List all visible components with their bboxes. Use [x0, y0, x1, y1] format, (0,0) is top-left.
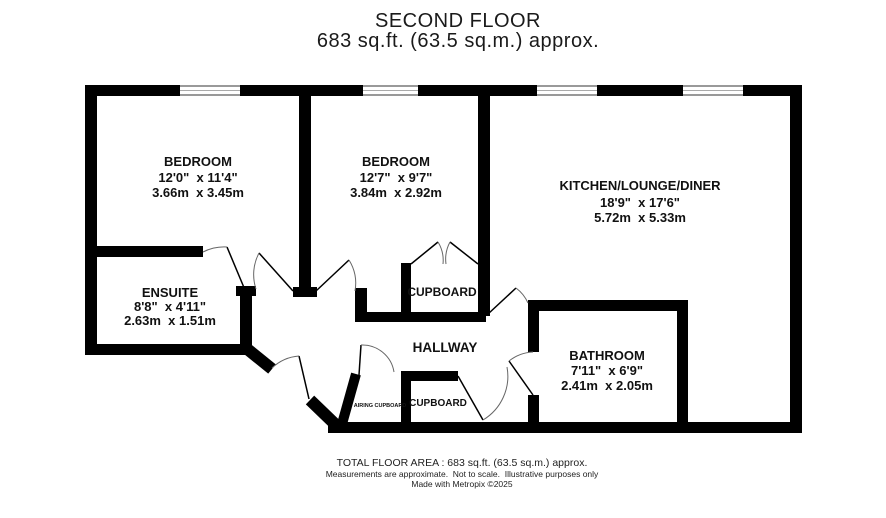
window-icon — [683, 85, 743, 96]
window-icon — [180, 85, 240, 96]
room-dims-metric: 2.63m x 1.51m — [124, 313, 216, 328]
window-icon — [537, 85, 597, 96]
room-label-hallway: HALLWAY — [413, 340, 478, 355]
disclaimer: Measurements are approximate. Not to sca… — [326, 469, 599, 479]
door-swing-hall-cupboard — [458, 367, 508, 420]
room-label-bedroom-2: BEDROOM 12'7" x 9'7" 3.84m x 2.92m — [350, 154, 442, 200]
room-dims-imperial: 12'7" x 9'7" — [360, 170, 433, 185]
door-swing-bedroom-cupboard-bifold — [411, 242, 478, 264]
room-dims-imperial: 12'0" x 11'4" — [158, 170, 237, 185]
room-dims-metric: 2.41m x 2.05m — [561, 378, 653, 393]
room-name: BEDROOM — [362, 154, 430, 169]
room-dims-imperial: 18'9" x 17'6" — [600, 195, 680, 210]
floorplan-page: SECOND FLOOR 683 sq.ft. (63.5 sq.m.) app… — [0, 0, 886, 518]
room-dims-metric: 3.66m x 3.45m — [152, 185, 244, 200]
window-icon — [363, 85, 418, 96]
room-dims-imperial: 8'8" x 4'11" — [134, 299, 206, 314]
door-swing-bedroom-2 — [316, 260, 356, 291]
room-label-airing-cupboard: AIRING CUPBOARD — [354, 403, 407, 409]
door-swing-bedroom-1 — [254, 253, 293, 291]
credit: Made with Metropix ©2025 — [411, 479, 513, 489]
room-label-kitchen-lounge-diner: KITCHEN/LOUNGE/DINER 18'9" x 17'6" 5.72m… — [559, 178, 721, 225]
door-swing-airing-cupboard — [359, 345, 394, 375]
room-label-ensuite: ENSUITE 8'8" x 4'11" 2.63m x 1.51m — [124, 285, 216, 328]
room-name: ENSUITE — [142, 285, 199, 300]
room-label-hall-cupboard: CUPBOARD — [409, 398, 467, 409]
room-dims-imperial: 7'11" x 6'9" — [571, 363, 643, 378]
plan-title: SECOND FLOOR 683 sq.ft. (63.5 sq.m.) app… — [317, 10, 599, 52]
floor-area-subtitle: 683 sq.ft. (63.5 sq.m.) approx. — [317, 30, 599, 52]
floorplan-canvas: SECOND FLOOR 683 sq.ft. (63.5 sq.m.) app… — [0, 0, 886, 518]
door-swing-bathroom — [509, 352, 533, 395]
room-label-bedroom-cupboard: CUPBOARD — [407, 285, 477, 299]
room-name: KITCHEN/LOUNGE/DINER — [559, 178, 721, 193]
room-dims-metric: 5.72m x 5.33m — [594, 210, 686, 225]
room-name: BATHROOM — [569, 348, 645, 363]
room-label-bedroom-1: BEDROOM 12'0" x 11'4" 3.66m x 3.45m — [152, 154, 244, 200]
room-labels: BEDROOM 12'0" x 11'4" 3.66m x 3.45m BEDR… — [124, 154, 721, 409]
door-swing-kitchen — [488, 288, 528, 314]
door-swing-ensuite — [203, 247, 245, 290]
plan-footer: TOTAL FLOOR AREA : 683 sq.ft. (63.5 sq.m… — [326, 457, 599, 489]
room-label-bathroom: BATHROOM 7'11" x 6'9" 2.41m x 2.05m — [561, 348, 653, 393]
room-name: BEDROOM — [164, 154, 232, 169]
total-floor-area: TOTAL FLOOR AREA : 683 sq.ft. (63.5 sq.m… — [337, 457, 588, 469]
door-swing-entrance — [272, 356, 309, 399]
room-dims-metric: 3.84m x 2.92m — [350, 185, 442, 200]
floor-title: SECOND FLOOR — [375, 10, 541, 32]
